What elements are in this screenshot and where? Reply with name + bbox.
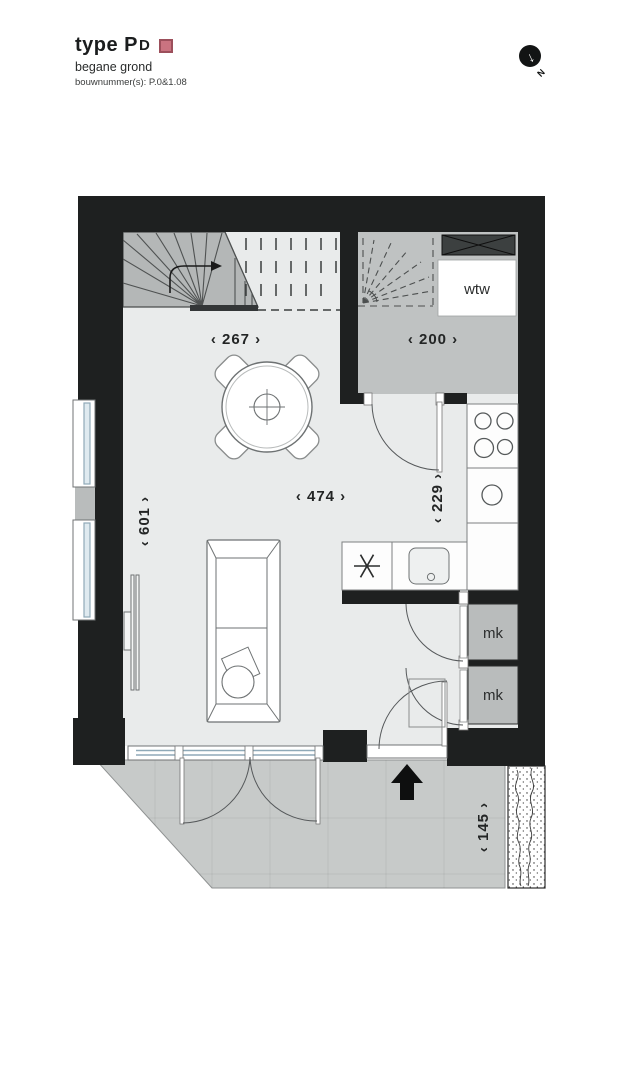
- floorplan-page: type PD begane grond bouwnummer(s): P.0&…: [0, 0, 619, 1092]
- wall-hall-divider: [340, 232, 358, 404]
- floorplan-drawing: wtw mk mk: [0, 0, 619, 1092]
- wall-west-pier: [73, 718, 125, 765]
- dim-living-width: ‹ 474 ›: [296, 488, 346, 505]
- dim-side-strip: ‹ 145 ›: [475, 802, 492, 852]
- kitchen-counter-hob: [467, 404, 518, 468]
- wall-north: [78, 196, 545, 232]
- tv-screen: [136, 575, 139, 690]
- dim-kitchen-depth: ‹ 229 ›: [429, 473, 446, 523]
- kitchen-counter-lower: [467, 523, 518, 590]
- kitchen-square-sink: [409, 548, 449, 584]
- mk-bottom-door-leaf: [460, 670, 467, 722]
- door-post: [364, 393, 372, 405]
- wall-south-east-corner: [447, 728, 545, 766]
- dining-set: [211, 351, 322, 462]
- mk-top-label: mk: [483, 625, 503, 642]
- terrace: [96, 760, 505, 888]
- mk-bottom-label: mk: [483, 687, 503, 704]
- hall-door-leaf: [437, 402, 442, 472]
- wtw-unit: wtw: [438, 260, 516, 316]
- wall-hall-south: [444, 393, 467, 404]
- wall-entry-stub: [323, 730, 367, 762]
- window-pier: [75, 486, 95, 520]
- window-glass: [84, 403, 90, 484]
- mk-top-door-leaf: [460, 606, 467, 658]
- terrace-door-leaf-left: [180, 758, 184, 824]
- mullion-post: [245, 746, 253, 760]
- sofa: [207, 540, 280, 722]
- west-windows: [73, 400, 95, 620]
- vent-shaft: [442, 235, 515, 255]
- compass-north-label: N: [535, 67, 547, 79]
- wall-kitchen-south: [342, 590, 460, 604]
- stair-cut-line: [190, 305, 258, 311]
- wall-kitchen-south-east: [468, 590, 545, 604]
- wtw-label: wtw: [463, 281, 490, 298]
- dim-stair-width: ‹ 267 ›: [211, 331, 261, 348]
- kitchen-counter-sink: [467, 468, 518, 523]
- wall-east: [518, 196, 545, 766]
- terrace-door-leaf-right: [316, 758, 320, 824]
- dim-hall-width: ‹ 200 ›: [408, 331, 458, 348]
- mk-door-post: [459, 592, 468, 604]
- tv-screen: [131, 575, 134, 690]
- wall-mk-divider: [460, 660, 518, 666]
- planting-strip: [508, 766, 545, 888]
- window-glass: [84, 523, 90, 617]
- north-compass: ↓ N: [519, 45, 547, 79]
- sofa-pouf: [222, 666, 254, 698]
- dim-living-depth: ‹ 601 ›: [136, 496, 153, 546]
